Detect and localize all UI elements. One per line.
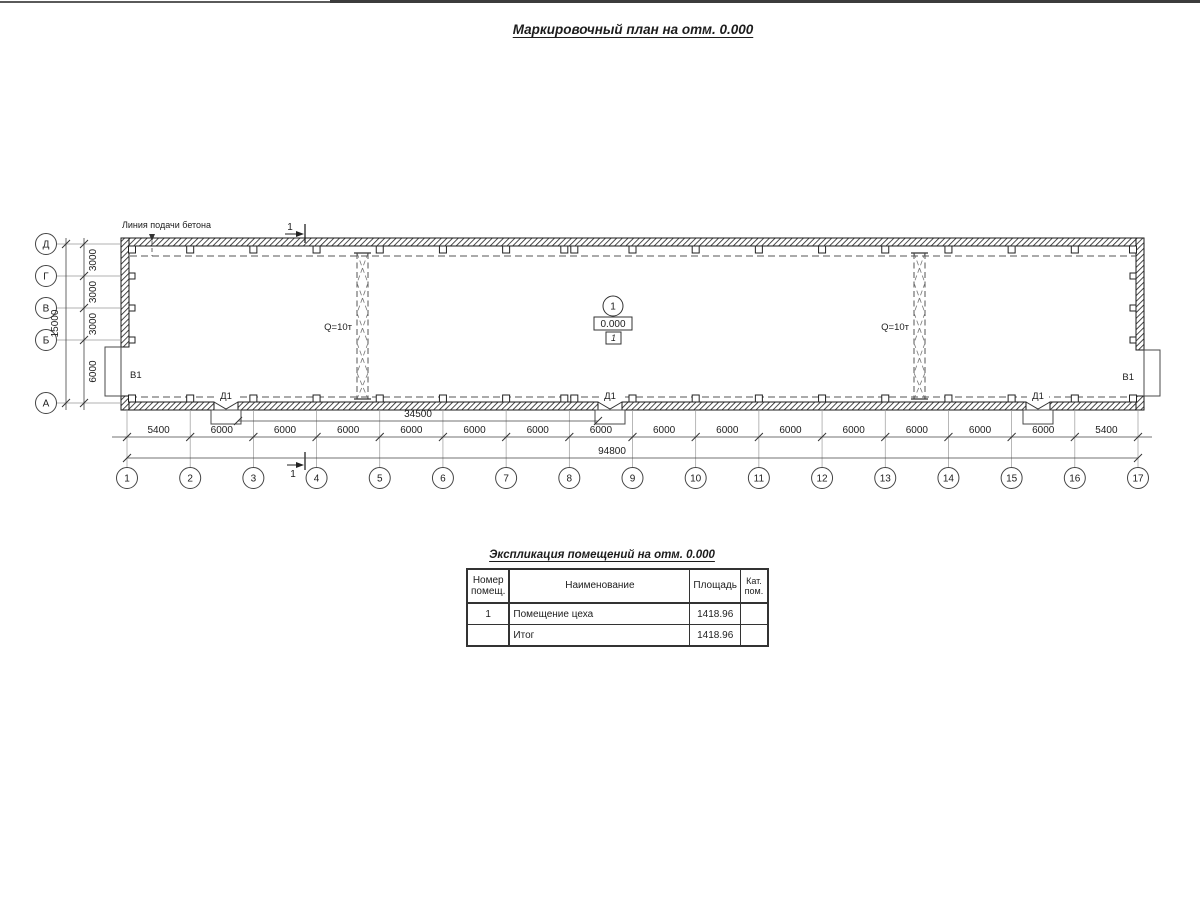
cell-room-area: 1418.96: [690, 603, 741, 625]
dim-bay-value: 6000: [906, 425, 929, 436]
door-label: Д1: [220, 391, 232, 402]
door-label: Д1: [1032, 391, 1044, 402]
axis-letter-label: В: [43, 304, 50, 315]
column-pilaster: [129, 273, 135, 279]
axis-number-label: 6: [440, 474, 446, 485]
column-pilaster: [629, 395, 636, 402]
dim-bay-value: 6000: [716, 425, 739, 436]
wall-right-seg: [1136, 238, 1144, 350]
cell-room-name: Итог: [509, 625, 690, 647]
axis-number-label: 7: [503, 474, 509, 485]
crane-runways: [130, 256, 1136, 397]
column-pilaster: [439, 246, 446, 253]
column-pilaster: [250, 246, 257, 253]
column-pilaster: [376, 246, 383, 253]
axis-number-label: 3: [251, 474, 257, 485]
column-pilaster: [1130, 305, 1136, 311]
header-name: Наименование: [509, 569, 690, 603]
gate-left-leaf: [105, 347, 121, 396]
floor-plan: Линия подачи бетона Q=10т Q=10т: [0, 0, 1200, 545]
wall-top: [121, 238, 1144, 246]
column-pilaster: [882, 246, 889, 253]
axis-letter-label: Г: [43, 272, 49, 283]
column-pilaster: [819, 246, 826, 253]
column-pilaster: [1130, 395, 1137, 402]
header-category: Кат. пом.: [740, 569, 768, 603]
wall-bottom-seg: [622, 402, 1026, 410]
column-pilaster: [376, 395, 383, 402]
drawing-sheet: Маркировочный план на отм. 0.000: [0, 0, 1200, 900]
column-pilaster: [692, 246, 699, 253]
column-pilaster: [1130, 246, 1137, 253]
dim-bay-value: 6000: [843, 425, 866, 436]
header-area: Площадь: [690, 569, 741, 603]
column-pilaster: [561, 395, 568, 402]
axis-letter-label: А: [43, 399, 50, 410]
gate-left-label: В1: [130, 370, 142, 381]
column-pilaster: [1071, 395, 1078, 402]
column-pilaster: [250, 395, 257, 402]
column-pilaster: [313, 395, 320, 402]
table-row: Итог 1418.96: [467, 625, 768, 647]
dim-bay-value: 6000: [463, 425, 486, 436]
dim-bay-value: 6000: [527, 425, 550, 436]
column-pilaster: [692, 395, 699, 402]
wall-left-seg: [121, 238, 129, 347]
door-porch: [595, 410, 625, 424]
door-swing: [214, 402, 238, 409]
wall-bottom-seg: [121, 402, 214, 410]
room-marker: 1 0.000 1: [594, 296, 632, 344]
dim-left-value: 6000: [88, 360, 99, 383]
room-schedule-table: Номер помещ. Наименование Площадь Кат. п…: [466, 568, 769, 647]
axis-number-label: 4: [314, 474, 320, 485]
dim-bay-value: 5400: [147, 425, 170, 436]
axis-letter-label: Д: [43, 240, 50, 251]
axis-number-label: 5: [377, 474, 383, 485]
crane-right-capacity-label: Q=10т: [881, 322, 910, 333]
axes-and-dimensions: 1234567891011121314151617540060006000600…: [36, 234, 1153, 489]
column-pilaster: [755, 395, 762, 402]
axis-number-label: 11: [754, 474, 765, 485]
axis-letter-label: Б: [43, 336, 50, 347]
axis-number-label: 13: [880, 474, 892, 485]
column-pilaster: [882, 395, 889, 402]
crane-right: Q=10т: [881, 253, 928, 399]
dim-left-value: 3000: [88, 248, 99, 271]
door-swing: [598, 402, 622, 409]
floor-type-mark: 1: [611, 333, 616, 343]
dim-left-value: 3000: [88, 312, 99, 335]
axis-number-label: 12: [817, 474, 829, 485]
axis-number-label: 17: [1132, 474, 1144, 485]
cell-room-number: 1: [467, 603, 509, 625]
dim-bay-value: 6000: [1032, 425, 1055, 436]
cell-room-cat: [740, 603, 768, 625]
column-pilaster: [945, 246, 952, 253]
door-label: Д1: [604, 391, 616, 402]
column-pilaster: [1071, 246, 1078, 253]
dim-bay-value: 6000: [653, 425, 676, 436]
axis-number-label: 1: [124, 474, 130, 485]
section-arrow-icon: [296, 231, 304, 237]
column-pilaster: [571, 246, 578, 253]
axis-number-label: 8: [567, 474, 573, 485]
wall-right-seg: [1136, 396, 1144, 410]
gate-right-leaf: [1144, 350, 1160, 396]
section-mark-bottom: 1: [287, 452, 305, 480]
dim-left-value: 3000: [88, 280, 99, 303]
column-pilaster: [1130, 337, 1136, 343]
wall-bottom-seg: [1050, 402, 1144, 410]
section-number: 1: [287, 222, 293, 233]
crane-left-capacity-label: Q=10т: [324, 322, 353, 333]
column-pilaster: [503, 395, 510, 402]
dim-bay-value: 6000: [969, 425, 992, 436]
dim-bay-value: 6000: [211, 425, 234, 436]
header-room-number: Номер помещ.: [467, 569, 509, 603]
cell-room-area: 1418.96: [690, 625, 741, 647]
column-pilaster: [129, 395, 136, 402]
wall-left-seg: [121, 396, 129, 410]
column-pilaster: [945, 395, 952, 402]
dim-bay-value: 6000: [337, 425, 360, 436]
section-number: 1: [290, 469, 296, 480]
axis-number-label: 16: [1069, 474, 1081, 485]
room-number: 1: [610, 302, 616, 313]
dim-bay-value: 6000: [274, 425, 297, 436]
dim-bay-value: 6000: [779, 425, 802, 436]
column-pilaster: [187, 246, 194, 253]
dim-bay-value: 5400: [1095, 425, 1118, 436]
column-pilaster: [629, 246, 636, 253]
gates: [105, 347, 1160, 396]
table-title: Экспликация помещений на отм. 0.000: [402, 549, 802, 561]
table-row: 1 Помещение цеха 1418.96: [467, 603, 768, 625]
column-pilaster: [503, 246, 510, 253]
column-pilaster: [187, 395, 194, 402]
column-pilaster: [439, 395, 446, 402]
column-pilaster: [571, 395, 578, 402]
dim-bay-value: 6000: [590, 425, 613, 436]
column-pilaster: [129, 305, 135, 311]
axis-number-label: 9: [630, 474, 636, 485]
column-pilaster: [1008, 395, 1015, 402]
axis-number-label: 14: [943, 474, 955, 485]
column-pilaster: [313, 246, 320, 253]
cell-room-name: Помещение цеха: [509, 603, 690, 625]
dim-bay-value: 6000: [400, 425, 423, 436]
column-pilaster: [1008, 246, 1015, 253]
concrete-line-label: Линия подачи бетона: [122, 220, 211, 230]
dim-total-value: 94800: [598, 446, 626, 457]
door-porch: [1023, 410, 1053, 424]
dim-left-total-value: 15000: [50, 309, 61, 337]
column-pilaster: [755, 246, 762, 253]
room-elevation: 0.000: [600, 319, 625, 330]
dim-doors-value: 34500: [404, 409, 432, 420]
column-pilaster: [129, 246, 136, 253]
table-header-row: Номер помещ. Наименование Площадь Кат. п…: [467, 569, 768, 603]
crane-left: Q=10т: [324, 253, 371, 399]
door-swing: [1026, 402, 1050, 409]
cell-room-cat: [740, 625, 768, 647]
cell-room-number: [467, 625, 509, 647]
column-pilaster: [1130, 273, 1136, 279]
axis-number-label: 2: [187, 474, 193, 485]
column-pilaster: [561, 246, 568, 253]
gate-right-label: В1: [1122, 372, 1134, 383]
column-pilaster: [819, 395, 826, 402]
section-arrow-icon: [296, 462, 304, 468]
column-pilaster: [129, 337, 135, 343]
axis-number-label: 10: [690, 474, 702, 485]
axis-number-label: 15: [1006, 474, 1018, 485]
